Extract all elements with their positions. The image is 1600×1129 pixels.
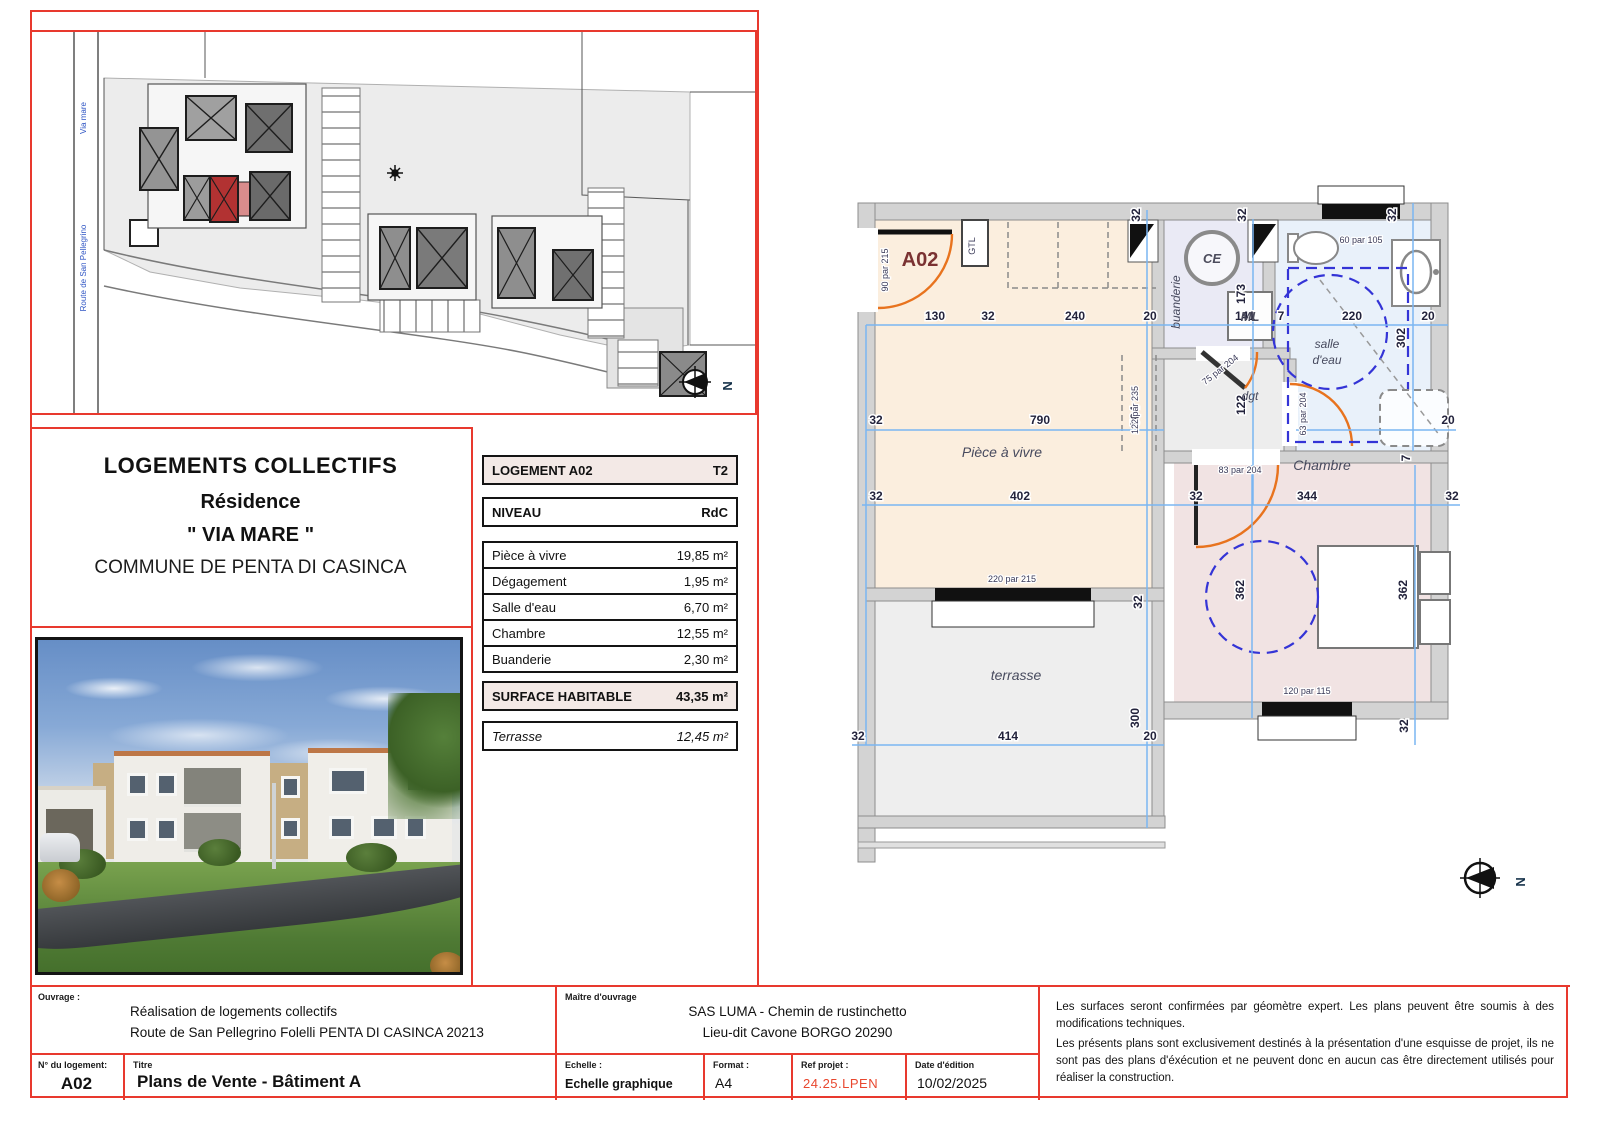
unit-area-table: LOGEMENT A02 T2 NIVEAU RdC Pièce à vivre… bbox=[482, 455, 738, 751]
footer-cell-ouvrage: Ouvrage : Réalisation de logements colle… bbox=[30, 987, 557, 1055]
legal-note: Les présents plans sont exclusivement de… bbox=[1056, 1036, 1554, 1088]
unit-label: A02 bbox=[902, 249, 939, 271]
opening-label: 90 par 215 bbox=[880, 248, 890, 291]
room-label-bathroom: d'eau bbox=[1313, 353, 1342, 367]
table-row: Pièce à vivre 19,85 m² bbox=[482, 541, 738, 569]
living-window bbox=[935, 588, 1091, 601]
render-window bbox=[405, 816, 426, 839]
dim-label: 7 bbox=[1278, 309, 1285, 323]
room-name: Salle d'eau bbox=[492, 600, 556, 615]
footer-cell-format: Format : A4 bbox=[705, 1055, 793, 1100]
dim-label: 220 bbox=[1342, 309, 1362, 323]
opening-label: 83 par 204 bbox=[1218, 465, 1261, 475]
dim-label: 344 bbox=[1297, 489, 1317, 503]
room-area: 12,55 m² bbox=[677, 626, 728, 641]
date-label: Date d'édition bbox=[915, 1060, 974, 1070]
level-value: RdC bbox=[701, 505, 728, 520]
street-label: Via mare bbox=[79, 102, 88, 134]
table-row: Buanderie 2,30 m² bbox=[482, 645, 738, 673]
room-label-terrace: terrasse bbox=[991, 667, 1042, 683]
floor-plan-drawing: 130 32 240 20 141 7 220 20 32 790 20 32 … bbox=[759, 10, 1570, 983]
sheet-footer: Ouvrage : Réalisation de logements colle… bbox=[30, 985, 1570, 1098]
opening-label: 63 par 204 bbox=[1298, 392, 1308, 435]
footer-cell-notes: Les surfaces seront confirmées par géomè… bbox=[1040, 987, 1570, 1100]
site-building bbox=[184, 176, 210, 220]
dim-label: 240 bbox=[1065, 309, 1085, 323]
plan-sheet: Via mare Route de San Pellegrino N bbox=[0, 0, 1600, 1129]
ref-value: 24.25.LPEN bbox=[803, 1076, 878, 1091]
label-washer: ML bbox=[1241, 309, 1260, 324]
site-building-subject bbox=[210, 176, 250, 222]
dim-label: 32 bbox=[981, 309, 995, 323]
dim-label: 173 bbox=[1234, 284, 1248, 304]
render-window bbox=[281, 776, 300, 798]
maitre-line: SAS LUMA - Chemin de rustinchetto bbox=[557, 1002, 1038, 1023]
dim-label: 302 bbox=[1394, 328, 1408, 348]
room-area: 6,70 m² bbox=[684, 600, 728, 615]
room-area-rows: Pièce à vivre 19,85 m² Dégagement 1,95 m… bbox=[482, 541, 738, 673]
footer-cell-date: Date d'édition 10/02/2025 bbox=[907, 1055, 1040, 1100]
dim-label: 362 bbox=[1396, 580, 1410, 600]
site-building bbox=[498, 228, 535, 298]
legal-note: Les surfaces seront confirmées par géomè… bbox=[1056, 999, 1554, 1034]
dim-label: 32 bbox=[1131, 595, 1145, 609]
render-window bbox=[127, 818, 148, 841]
footer-cell-maitre-ouvrage: Maître d'ouvrage SAS LUMA - Chemin de ru… bbox=[557, 987, 1040, 1055]
render-window bbox=[156, 773, 177, 796]
floor-plan-panel: 130 32 240 20 141 7 220 20 32 790 20 32 … bbox=[757, 10, 1570, 985]
room-label-hall: dgt bbox=[1242, 389, 1259, 403]
render-balcony bbox=[184, 768, 241, 808]
project-title-line: Résidence bbox=[30, 491, 471, 514]
dim-label: 32 bbox=[1235, 208, 1249, 222]
total-label: SURFACE HABITABLE bbox=[492, 689, 632, 704]
dim-label: 32 bbox=[1189, 489, 1203, 503]
entry-opening bbox=[852, 228, 878, 312]
render-window bbox=[371, 816, 396, 839]
dim-label: 32 bbox=[1445, 489, 1459, 503]
unit-name: LOGEMENT A02 bbox=[492, 463, 593, 478]
room-area: 1,95 m² bbox=[684, 574, 728, 589]
dim-label: 32 bbox=[869, 413, 883, 427]
bath-door-opening bbox=[1282, 382, 1298, 446]
project-title-line: " VIA MARE " bbox=[30, 524, 471, 547]
dim-label: 20 bbox=[1143, 309, 1157, 323]
bath-window-sill bbox=[1318, 186, 1404, 204]
render-car bbox=[40, 833, 80, 863]
table-row-total: SURFACE HABITABLE 43,35 m² bbox=[482, 681, 738, 711]
label-water-heater: CE bbox=[1203, 251, 1221, 266]
dim-label: 32 bbox=[851, 729, 865, 743]
site-building bbox=[417, 228, 467, 288]
room-label-laundry: buanderie bbox=[1169, 275, 1183, 329]
render-bush bbox=[198, 839, 240, 866]
format-label: Format : bbox=[713, 1060, 749, 1070]
table-row: Dégagement 1,95 m² bbox=[482, 567, 738, 595]
render-tree bbox=[388, 693, 463, 819]
dim-label: 362 bbox=[1233, 580, 1247, 600]
building-render-photo bbox=[35, 637, 463, 975]
table-row-level: NIVEAU RdC bbox=[482, 497, 738, 527]
room-label-living: Pièce à vivre bbox=[962, 444, 1042, 460]
dim-label: 20 bbox=[1421, 309, 1435, 323]
render-bush bbox=[346, 843, 397, 873]
dim-label: 20 bbox=[1441, 413, 1455, 427]
dim-label: 32 bbox=[869, 489, 883, 503]
room-name: Dégagement bbox=[492, 574, 566, 589]
render-window bbox=[329, 768, 367, 795]
sink-icon bbox=[1392, 240, 1440, 306]
dim-label: 300 bbox=[1128, 708, 1142, 728]
table-row-terrace: Terrasse 12,45 m² bbox=[482, 721, 738, 751]
unit-number-label: N° du logement: bbox=[38, 1060, 107, 1070]
room-label-bedroom: Chambre bbox=[1293, 457, 1351, 473]
site-building bbox=[380, 227, 410, 289]
render-window bbox=[281, 818, 300, 840]
sheet-title: Plans de Vente - Bâtiment A bbox=[137, 1072, 361, 1092]
dim-label: 790 bbox=[1030, 413, 1050, 427]
site-building bbox=[250, 172, 290, 220]
render-lamp-post bbox=[272, 783, 276, 869]
ouvrage-label: Ouvrage : bbox=[38, 992, 80, 1002]
terrace-label: Terrasse bbox=[492, 729, 542, 744]
dim-label: 402 bbox=[1010, 489, 1030, 503]
dim-label: 414 bbox=[998, 729, 1018, 743]
dim-label: 32 bbox=[1385, 208, 1399, 222]
room-name: Pièce à vivre bbox=[492, 548, 566, 563]
opening-label: 220 par 215 bbox=[988, 574, 1036, 584]
project-title-block: LOGEMENTS COLLECTIFS Résidence " VIA MAR… bbox=[30, 427, 473, 628]
site-building bbox=[186, 96, 236, 140]
title-label: Titre bbox=[133, 1060, 152, 1070]
ouvrage-line: Route de San Pellegrino Folelli PENTA DI… bbox=[130, 1023, 484, 1044]
north-compass-icon: N bbox=[1460, 858, 1528, 898]
room-name: Buanderie bbox=[492, 652, 551, 667]
dim-label: 7 bbox=[1399, 454, 1413, 461]
street-label: Route de San Pellegrino bbox=[79, 224, 88, 311]
footer-cell-title: Titre Plans de Vente - Bâtiment A bbox=[125, 1055, 557, 1100]
dim-label: 32 bbox=[1129, 208, 1143, 222]
toilet-icon bbox=[1288, 232, 1338, 264]
footer-cell-scale: Echelle : Echelle graphique bbox=[557, 1055, 705, 1100]
total-value: 43,35 m² bbox=[676, 689, 728, 704]
project-title-line: LOGEMENTS COLLECTIFS bbox=[30, 453, 471, 479]
bedroom-window bbox=[1262, 702, 1352, 716]
site-building bbox=[140, 128, 178, 190]
site-plan-drawing: Via mare Route de San Pellegrino N bbox=[32, 32, 755, 413]
render-window bbox=[156, 818, 177, 841]
render-window bbox=[329, 816, 354, 839]
ouvrage-line: Réalisation de logements collectifs bbox=[130, 1002, 484, 1023]
scale-value: Echelle graphique bbox=[565, 1077, 673, 1091]
dim-label: 32 bbox=[1397, 719, 1411, 733]
north-label: N bbox=[720, 381, 735, 390]
dim-label: 130 bbox=[925, 309, 945, 323]
maitre-line: Lieu-dit Cavone BORGO 20290 bbox=[557, 1023, 1038, 1044]
unit-number: A02 bbox=[30, 1074, 123, 1094]
scale-label: Echelle : bbox=[565, 1060, 602, 1070]
level-label: NIVEAU bbox=[492, 505, 541, 520]
footer-cell-unit-number: N° du logement: A02 bbox=[30, 1055, 125, 1100]
site-building bbox=[246, 104, 292, 152]
room-label-bathroom: salle bbox=[1315, 337, 1340, 351]
format-value: A4 bbox=[715, 1075, 732, 1091]
terrace-area: 12,45 m² bbox=[677, 729, 728, 744]
project-title-line: COMMUNE DE PENTA DI CASINCA bbox=[30, 557, 471, 579]
ref-label: Ref projet : bbox=[801, 1060, 849, 1070]
render-flowerbed bbox=[430, 952, 463, 975]
site-building bbox=[553, 250, 593, 300]
dim-label: 20 bbox=[1143, 729, 1157, 743]
opening-label: 120 par 115 bbox=[1283, 686, 1330, 696]
room-name: Chambre bbox=[492, 626, 545, 641]
footer-cell-project-ref: Ref projet : 24.25.LPEN bbox=[793, 1055, 907, 1100]
column-divider bbox=[471, 628, 473, 985]
label-gtl: GTL bbox=[967, 237, 977, 255]
bedroom-door-opening bbox=[1192, 449, 1280, 465]
date-value: 10/02/2025 bbox=[917, 1075, 987, 1091]
room-area: 2,30 m² bbox=[684, 652, 728, 667]
render-window bbox=[127, 773, 148, 796]
table-row: Chambre 12,55 m² bbox=[482, 619, 738, 647]
table-row-header: LOGEMENT A02 T2 bbox=[482, 455, 738, 485]
unit-type: T2 bbox=[713, 463, 728, 478]
north-label: N bbox=[1513, 877, 1528, 886]
opening-label: 60 par 105 bbox=[1339, 235, 1382, 245]
maitre-label: Maître d'ouvrage bbox=[565, 992, 637, 1002]
opening-label: 122 par 235 bbox=[1130, 386, 1140, 434]
room-area: 19,85 m² bbox=[677, 548, 728, 563]
site-plan-panel: Via mare Route de San Pellegrino N bbox=[30, 30, 757, 415]
table-row: Salle d'eau 6,70 m² bbox=[482, 593, 738, 621]
